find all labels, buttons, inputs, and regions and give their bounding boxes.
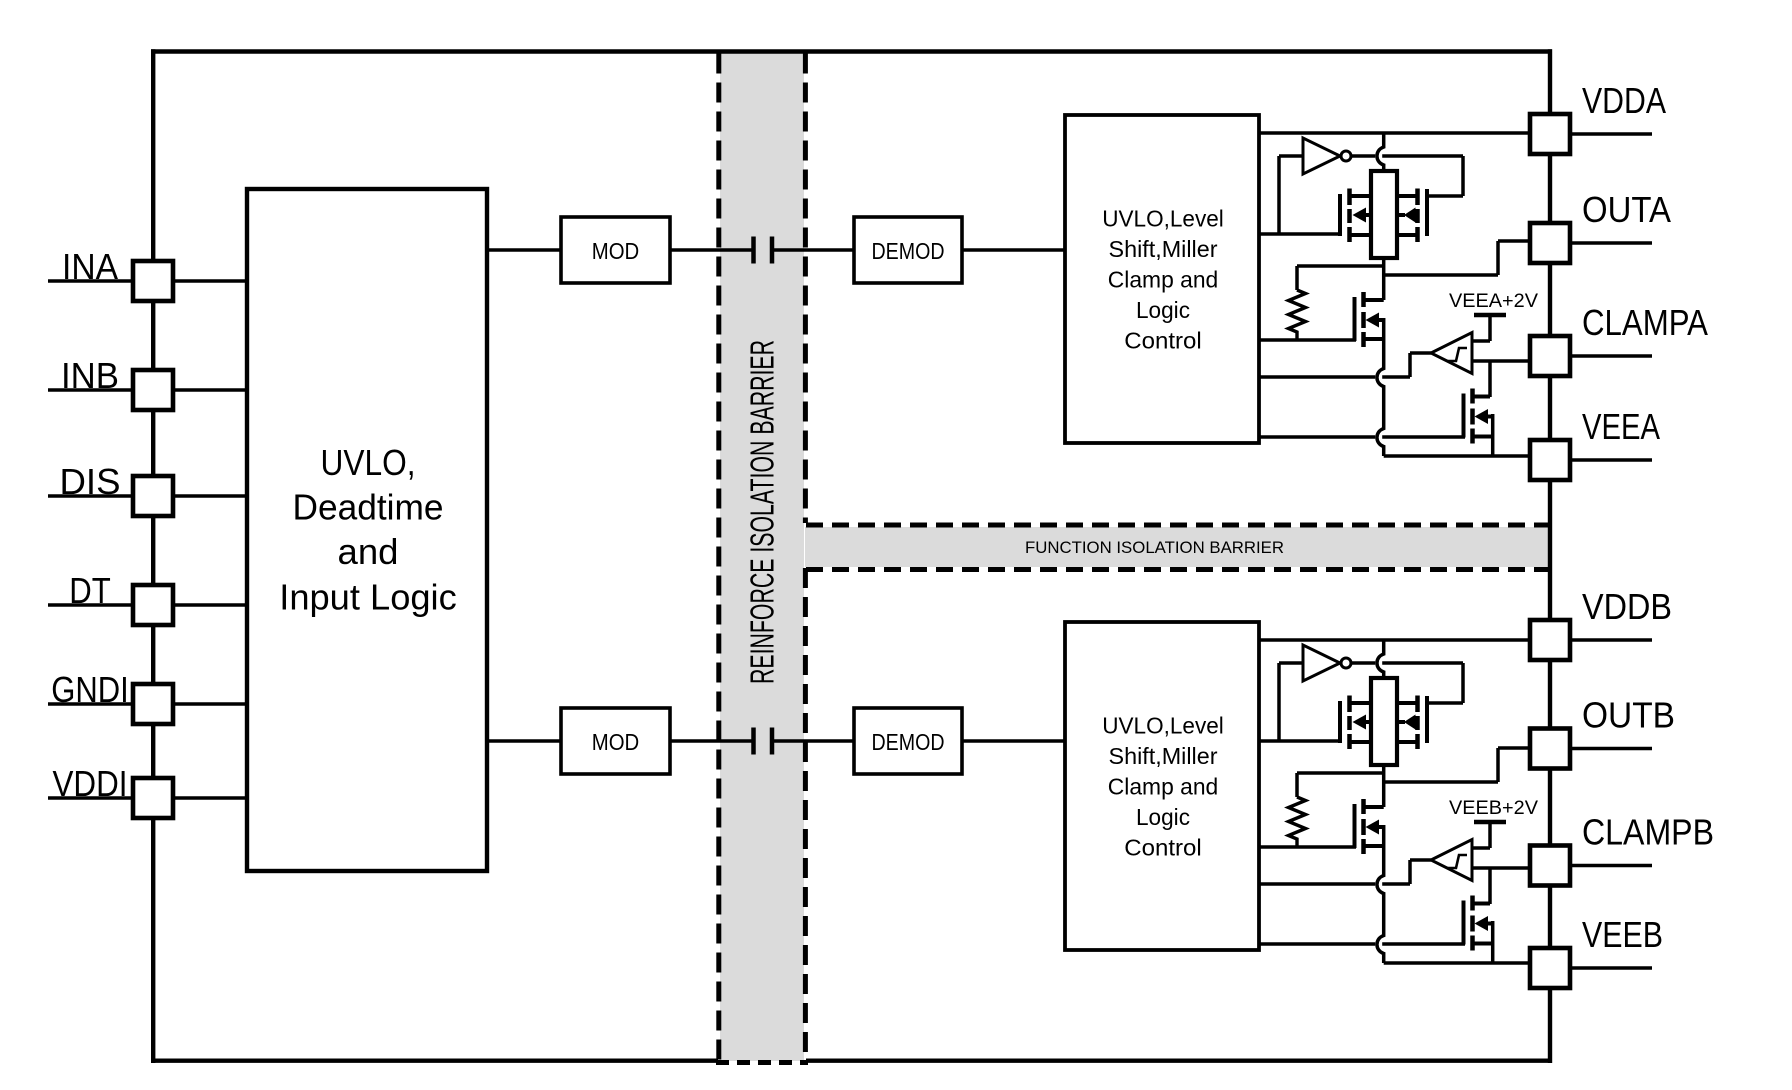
svg-text:DT: DT [69, 570, 111, 611]
svg-text:Deadtime: Deadtime [293, 487, 444, 528]
svg-text:Shift,Miller: Shift,Miller [1109, 743, 1218, 769]
svg-text:DIS: DIS [60, 461, 121, 502]
svg-text:DEMOD: DEMOD [872, 238, 945, 264]
svg-text:INB: INB [61, 355, 119, 396]
svg-text:VDDI: VDDI [53, 763, 128, 804]
svg-text:CLAMPB: CLAMPB [1582, 812, 1714, 853]
svg-text:DEMOD: DEMOD [872, 729, 945, 755]
svg-text:MOD: MOD [592, 238, 640, 264]
svg-text:and: and [338, 531, 399, 572]
svg-text:OUTA: OUTA [1582, 189, 1671, 230]
svg-text:VDDB: VDDB [1582, 586, 1672, 627]
svg-text:OUTB: OUTB [1582, 695, 1675, 736]
svg-text:Control: Control [1124, 835, 1202, 861]
svg-text:MOD: MOD [592, 729, 640, 755]
svg-text:CLAMPA: CLAMPA [1582, 302, 1708, 343]
svg-text:INA: INA [62, 246, 118, 287]
svg-text:UVLO,: UVLO, [321, 442, 416, 483]
svg-text:Control: Control [1124, 328, 1202, 354]
svg-text:FUNCTION ISOLATION BARRIER: FUNCTION ISOLATION BARRIER [1025, 538, 1284, 557]
svg-text:VEEB+2V: VEEB+2V [1449, 798, 1538, 819]
svg-text:REINFORCE ISOLATION BARRIER: REINFORCE ISOLATION BARRIER [744, 340, 781, 684]
svg-text:VDDA: VDDA [1582, 80, 1666, 121]
svg-text:Input Logic: Input Logic [279, 577, 457, 618]
svg-text:Logic: Logic [1136, 804, 1190, 830]
svg-text:Shift,Miller: Shift,Miller [1109, 236, 1218, 262]
svg-text:VEEA+2V: VEEA+2V [1449, 291, 1538, 312]
svg-text:VEEA: VEEA [1582, 406, 1660, 447]
svg-text:GNDI: GNDI [51, 669, 129, 710]
svg-text:UVLO,Level: UVLO,Level [1102, 206, 1224, 232]
svg-text:UVLO,Level: UVLO,Level [1102, 713, 1224, 739]
svg-text:VEEB: VEEB [1582, 914, 1663, 955]
svg-text:Clamp and: Clamp and [1108, 267, 1219, 293]
svg-text:Clamp and: Clamp and [1108, 774, 1219, 800]
svg-text:Logic: Logic [1136, 297, 1190, 323]
